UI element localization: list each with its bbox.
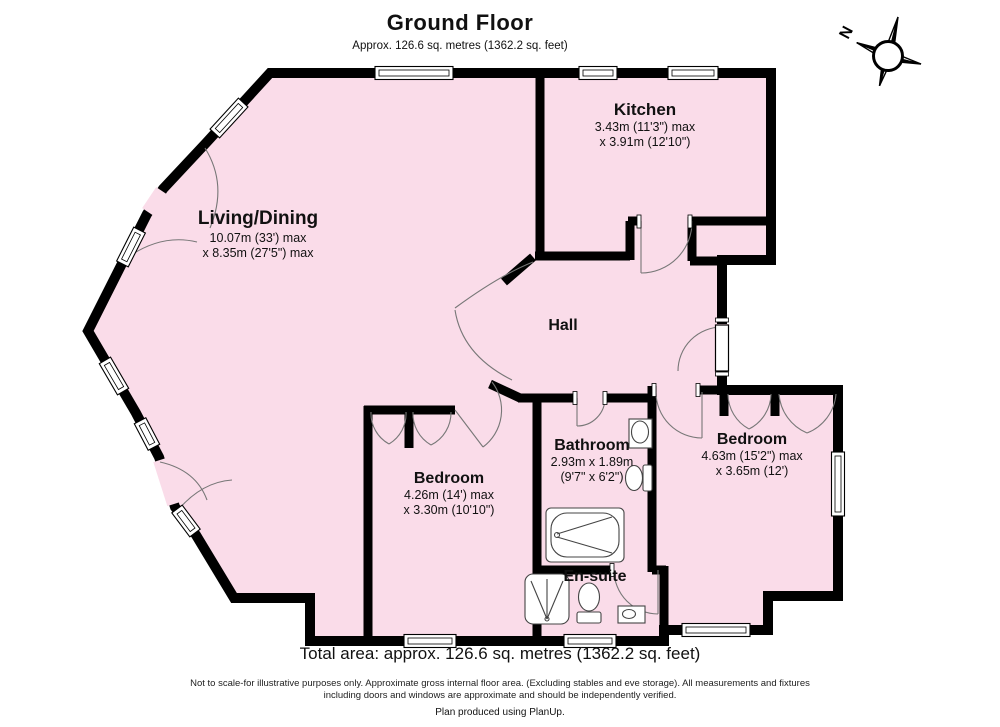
room-name-bathroom: Bathroom bbox=[551, 436, 634, 455]
total-area-text: Total area: approx. 126.6 sq. metres (13… bbox=[0, 644, 1000, 664]
room-dim2-bedroom-left: x 3.30m (10'10") bbox=[404, 503, 495, 518]
room-name-ensuite: En-suite bbox=[563, 567, 626, 586]
room-label-kitchen: Kitchen 3.43m (11'3") max x 3.91m (12'10… bbox=[595, 100, 695, 150]
room-dim1-living: 10.07m (33') max bbox=[198, 231, 318, 246]
floorplan-page: Ground Floor Approx. 126.6 sq. metres (1… bbox=[0, 0, 1000, 727]
room-dim1-bedroom-right: 4.63m (15'2") max bbox=[701, 449, 802, 464]
room-name-hall: Hall bbox=[548, 316, 577, 335]
room-label-ensuite: En-suite bbox=[563, 567, 626, 586]
front-door-slab bbox=[716, 325, 729, 371]
ensuite-toilet bbox=[577, 583, 601, 623]
bathtub bbox=[546, 508, 624, 562]
room-label-hall: Hall bbox=[548, 316, 577, 335]
room-dim1-bedroom-left: 4.26m (14') max bbox=[404, 488, 495, 503]
window-bedroom-right-bottom bbox=[682, 624, 750, 637]
window-top-1 bbox=[375, 67, 453, 80]
compass-star bbox=[857, 17, 921, 86]
room-label-bathroom: Bathroom 2.93m x 1.89m (9'7" x 6'2") bbox=[551, 436, 634, 485]
compass-north-label: N bbox=[837, 24, 857, 42]
room-dim2-living: x 8.35m (27'5") max bbox=[198, 246, 318, 261]
room-dim1-kitchen: 3.43m (11'3") max bbox=[595, 120, 695, 135]
compass-rose: N bbox=[828, 6, 952, 110]
room-label-bedroom-right: Bedroom 4.63m (15'2") max x 3.65m (12') bbox=[701, 430, 802, 479]
room-name-bedroom-left: Bedroom bbox=[404, 469, 495, 488]
window-top-3 bbox=[668, 67, 718, 80]
room-label-bedroom-left: Bedroom 4.26m (14') max x 3.30m (10'10") bbox=[404, 469, 495, 518]
disclaimer-line-2: including doors and windows are approxim… bbox=[0, 690, 1000, 701]
room-name-bedroom-right: Bedroom bbox=[701, 430, 802, 449]
room-dim2-kitchen: x 3.91m (12'10") bbox=[595, 135, 695, 150]
room-dim2-bedroom-right: x 3.65m (12') bbox=[701, 464, 802, 479]
ensuite-basin bbox=[618, 606, 645, 623]
window-bedroom-right-side bbox=[832, 452, 845, 516]
room-name-living: Living/Dining bbox=[198, 208, 318, 231]
window-top-2 bbox=[579, 67, 617, 80]
shower bbox=[525, 574, 569, 624]
room-dim2-bathroom: (9'7" x 6'2") bbox=[551, 470, 634, 485]
credit-text: Plan produced using PlanUp. bbox=[0, 707, 1000, 718]
room-name-kitchen: Kitchen bbox=[595, 100, 695, 120]
disclaimer-line-1: Not to scale-for illustrative purposes o… bbox=[0, 678, 1000, 689]
room-dim1-bathroom: 2.93m x 1.89m bbox=[551, 455, 634, 470]
room-label-living: Living/Dining 10.07m (33') max x 8.35m (… bbox=[198, 208, 318, 261]
